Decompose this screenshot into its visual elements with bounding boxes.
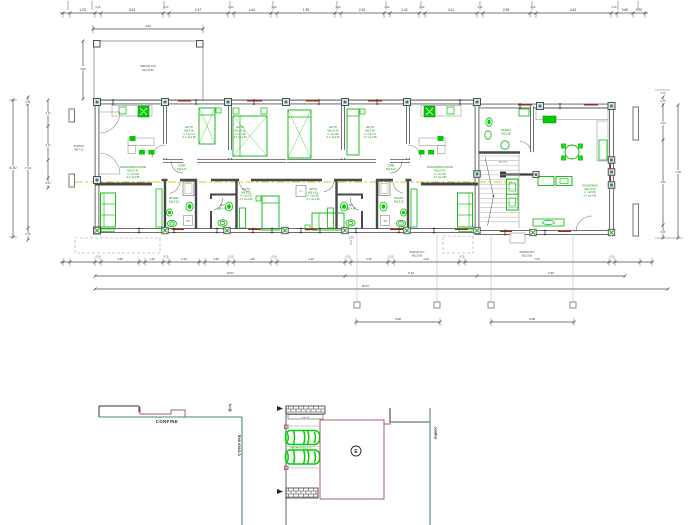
svg-text:A.T. mq 1.58: A.T. mq 1.58 [364,136,378,139]
svg-text:1.39: 1.39 [303,8,309,12]
svg-text:WS 1/17: WS 1/17 [499,162,508,164]
svg-text:0.70: 0.70 [636,8,642,12]
svg-text:A : mq 1.74: A : mq 1.74 [364,133,376,136]
svg-text:A.T. mq 1.50: A.T. mq 1.50 [240,198,254,201]
svg-text:MQ 23.60: MQ 23.60 [412,255,423,258]
svg-text:0.10: 0.10 [272,6,277,9]
svg-text:A : mq 1.80: A : mq 1.80 [327,133,339,136]
svg-text:4.42: 4.42 [570,8,576,12]
svg-text:0.10: 0.10 [478,6,483,9]
svg-text:0.10: 0.10 [96,6,101,9]
svg-text:A.T. mq 0.87: A.T. mq 0.87 [127,176,141,179]
svg-text:MQ 23.60: MQ 23.60 [522,255,533,258]
svg-text:0.10: 0.10 [229,6,234,9]
svg-text:A.T. mq 0.87: A.T. mq 0.87 [434,176,448,179]
svg-text:MQ 8.01: MQ 8.01 [241,191,251,194]
svg-text:1.42: 1.42 [401,8,407,12]
svg-text:0.10: 0.10 [385,6,390,9]
svg-text:3.40: 3.40 [46,144,51,147]
svg-text:MQ 33.80: MQ 33.80 [142,68,154,72]
svg-text:2.47: 2.47 [195,8,201,12]
svg-text:MQ 5.02: MQ 5.02 [394,200,404,203]
svg-text:MQ 5.08: MQ 5.08 [501,132,511,135]
svg-text:MQ 9.06: MQ 9.06 [184,129,194,132]
svg-text:A.T. mq 1.58: A.T. mq 1.58 [183,136,197,139]
svg-text:0.10: 0.10 [610,257,615,259]
svg-text:5.08: 5.08 [529,317,535,321]
svg-text:0.45: 0.45 [661,231,666,234]
svg-text:3.11: 3.11 [448,8,454,12]
svg-text:MQ 5.47: MQ 5.47 [386,168,396,171]
svg-text:a.s.: a.s. [299,191,303,193]
svg-text:7.40: 7.40 [25,166,31,170]
svg-text:A : mq 1.80: A : mq 1.80 [234,133,246,136]
svg-text:A : mq 1.74: A : mq 1.74 [183,133,195,136]
svg-text:MQ 7.31: MQ 7.31 [74,149,84,152]
svg-text:0.10: 0.10 [164,6,169,9]
svg-text:MQ 4.06: MQ 4.06 [217,207,227,210]
svg-text:MQ 14.16: MQ 14.16 [235,129,247,132]
svg-text:0.10: 0.10 [612,6,617,9]
svg-text:PERGOLATO: PERGOLATO [410,251,425,254]
svg-text:confine: confine [434,427,438,440]
svg-text:MQ 27.57: MQ 27.57 [128,169,140,172]
svg-text:A : mq 1.55: A : mq 1.55 [240,195,252,198]
svg-text:0.60: 0.60 [622,8,628,12]
svg-text:2.40: 2.40 [660,121,666,125]
svg-text:6.33: 6.33 [408,271,414,275]
svg-text:0.45: 0.45 [26,233,31,236]
svg-text:4.42: 4.42 [423,257,429,261]
svg-text:1.40: 1.40 [149,257,155,261]
svg-text:MQ 8.01: MQ 8.01 [308,191,318,194]
svg-text:A : mq 5.45: A : mq 5.45 [434,173,446,176]
svg-text:MQ 14.16: MQ 14.16 [328,129,340,132]
svg-text:5.08: 5.08 [395,317,401,321]
svg-text:A : mq 1.55: A : mq 1.55 [307,195,319,198]
svg-text:PORTICO: PORTICO [74,145,85,148]
svg-text:0.70: 0.70 [661,92,666,95]
svg-text:0.10: 0.10 [272,257,277,259]
svg-text:7.04: 7.04 [534,257,540,261]
svg-text:PERGOLATO: PERGOLATO [520,251,535,254]
svg-text:2.65: 2.65 [213,257,219,261]
svg-text:A.T. mq 1.60: A.T. mq 1.60 [234,136,248,139]
svg-text:PERGOLATO: PERGOLATO [140,64,156,68]
svg-text:1.20: 1.20 [79,8,85,12]
svg-text:3.68: 3.68 [117,257,123,261]
svg-text:0.10: 0.10 [336,6,341,9]
svg-text:3.42: 3.42 [129,8,135,12]
svg-text:1.44: 1.44 [249,8,255,12]
svg-text:A.T. mq 1.50: A.T. mq 1.50 [307,198,321,201]
svg-text:1.45: 1.45 [249,257,255,261]
svg-text:4.42: 4.42 [145,24,151,28]
svg-text:MQ 9.06: MQ 9.06 [365,129,375,132]
svg-text:2.96: 2.96 [503,8,509,12]
svg-text:6.56: 6.56 [548,271,554,275]
svg-text:7.40: 7.40 [675,170,681,174]
svg-text:2.60: 2.60 [366,257,372,261]
svg-text:0.45: 0.45 [661,100,666,103]
svg-text:CONFINE: CONFINE [156,419,178,424]
svg-text:0.50: 0.50 [348,236,354,240]
svg-text:0.10: 0.10 [164,257,169,259]
svg-text:MQ 27.57: MQ 27.57 [435,169,447,172]
svg-text:PARCHEGGI MQ 25.00: PARCHEGGI MQ 25.00 [290,447,312,450]
svg-text:0.10: 0.10 [420,6,425,9]
svg-text:MQ 4.06: MQ 4.06 [346,207,356,210]
svg-text:0.10: 0.10 [96,257,101,259]
svg-text:4.40: 4.40 [308,257,314,261]
svg-text:2.23: 2.23 [181,257,187,261]
svg-text:8.30: 8.30 [10,166,17,170]
svg-text:15.44: 15.44 [361,284,369,288]
svg-text:0.10: 0.10 [531,6,536,9]
svg-text:LAV.: LAV. [186,220,191,223]
svg-text:4.80: 4.80 [660,180,666,184]
svg-text:mq/a 50: mq/a 50 [302,417,311,419]
svg-text:A : mq 5.86: A : mq 5.86 [584,191,596,194]
svg-text:1.40: 1.40 [46,112,51,115]
svg-text:LAV.: LAV. [382,220,387,223]
svg-text:0.45: 0.45 [26,101,31,104]
svg-text:A.T. mq 1.60: A.T. mq 1.60 [327,136,341,139]
svg-text:MQ 5.02: MQ 5.02 [169,200,179,203]
svg-text:0.10: 0.10 [389,257,394,259]
svg-text:2.42: 2.42 [359,8,365,12]
svg-text:MQ 27.09: MQ 27.09 [585,188,597,191]
svg-text:0.10: 0.10 [460,257,465,259]
svg-text:A : mq 5.45: A : mq 5.45 [127,173,139,176]
svg-text:MQ 5.47: MQ 5.47 [177,168,187,171]
svg-text:CONFINE: CONFINE [237,434,242,456]
svg-text:0.10: 0.10 [229,257,234,259]
svg-text:A.T. mq 0.92: A.T. mq 0.92 [584,194,598,197]
svg-text:10.54: 10.54 [226,271,234,275]
svg-text:0.60: 0.60 [46,182,51,185]
svg-text:3.40: 3.40 [80,67,86,71]
svg-text:0.10: 0.10 [346,257,351,259]
